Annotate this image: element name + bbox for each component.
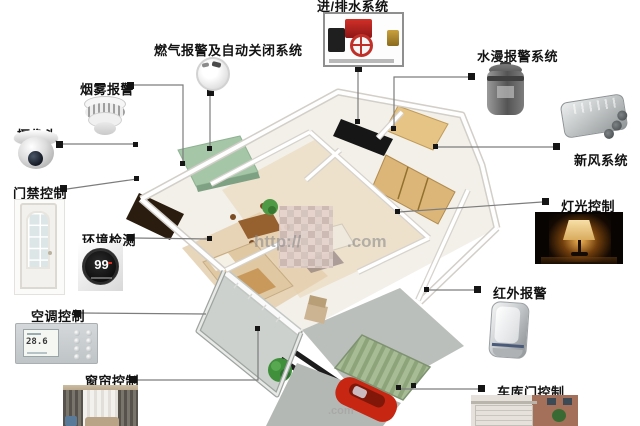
watermark-corner: .com (328, 405, 354, 417)
ac-button (74, 330, 80, 336)
connector-ac-control (74, 310, 206, 317)
garage-window-icon (563, 398, 572, 405)
pump-valve-icon (387, 30, 399, 46)
connector-camera (56, 141, 138, 148)
env-thermostat-device: 99 (78, 243, 123, 291)
ac-button (74, 346, 80, 352)
plant-shadow (268, 206, 276, 214)
watermark-suffix: .com (347, 232, 387, 251)
pir-foot-icon (492, 348, 522, 358)
flood-sensor-device (487, 62, 524, 117)
door-glass-icon (26, 211, 50, 269)
thermostat-dial-icon: 99 (82, 248, 119, 285)
lamp-photo (535, 212, 623, 264)
canister-label-icon (497, 86, 514, 98)
watermark-prefix: http:// (254, 232, 301, 251)
ac-control-panel-device: 28.6 (15, 323, 98, 364)
ac-button (86, 354, 92, 360)
label-fresh-air: 新风系统 (574, 150, 628, 169)
smoke-detector-device (84, 96, 126, 138)
camera-lens-icon (28, 151, 43, 166)
fresh-air-port-icon (603, 128, 614, 139)
curtain-photo (63, 385, 138, 426)
label-gas-alarm: 燃气报警及自动关闭系统 (154, 40, 303, 59)
lamp-floor-icon (541, 257, 617, 264)
curtain-right-icon (118, 390, 138, 426)
thermostat-reading: 99 (83, 257, 120, 272)
ac-button (86, 330, 92, 336)
floor-plan: http:// .com .com (126, 92, 497, 426)
gas-detector-slot-icon (202, 62, 210, 67)
door-knob-icon (48, 251, 52, 255)
canister-band-icon (487, 76, 524, 81)
garage-window-icon (547, 398, 556, 405)
fresh-air-port-icon (617, 110, 628, 121)
ac-button (74, 338, 80, 344)
fresh-air-ridges-icon (567, 97, 620, 115)
ac-lcd-display: 28.6 (23, 329, 59, 357)
thermostat-red-mark-icon (108, 262, 112, 264)
pir-face-icon (494, 306, 520, 344)
dining-chair (230, 214, 236, 220)
bush-light (271, 361, 281, 371)
ac-button (86, 346, 92, 352)
ac-lcd-line-icon (27, 352, 47, 354)
pir-body-icon (488, 301, 530, 360)
ac-button (74, 354, 80, 360)
pump-base-icon (329, 59, 394, 63)
garage-tree-icon (552, 409, 566, 422)
garage-roofline-icon (471, 401, 537, 404)
garage-doorpanel-icon (475, 405, 533, 426)
gas-detector-device (196, 57, 230, 91)
smart-home-diagram: http:// .com .com (0, 0, 640, 426)
thermostat-tick-icon (91, 277, 112, 279)
curtain-chair-icon (65, 416, 77, 426)
fresh-air-box-icon (560, 93, 629, 139)
ac-lcd-line-icon (27, 333, 41, 335)
connector-smoke-alarm (127, 82, 185, 166)
garage-door-photo (471, 395, 578, 426)
smoke-detector-dome-icon (94, 122, 116, 135)
water-pump-device (323, 12, 404, 67)
ac-temperature-reading: 28.6 (26, 337, 48, 347)
pump-housing-icon (328, 28, 345, 52)
infrared-sensor-device (488, 300, 532, 360)
gas-detector-slot-icon (212, 61, 222, 68)
connector-door-access (60, 176, 139, 192)
fresh-air-unit-device (560, 92, 630, 142)
entry-door-photo (14, 199, 65, 295)
door-frame-icon (20, 203, 57, 289)
camera-device (14, 127, 58, 173)
lamp-base-icon (571, 252, 588, 256)
ac-button (86, 338, 92, 344)
curtain-sofa-icon (85, 417, 119, 426)
pump-spoke-icon (352, 44, 371, 46)
